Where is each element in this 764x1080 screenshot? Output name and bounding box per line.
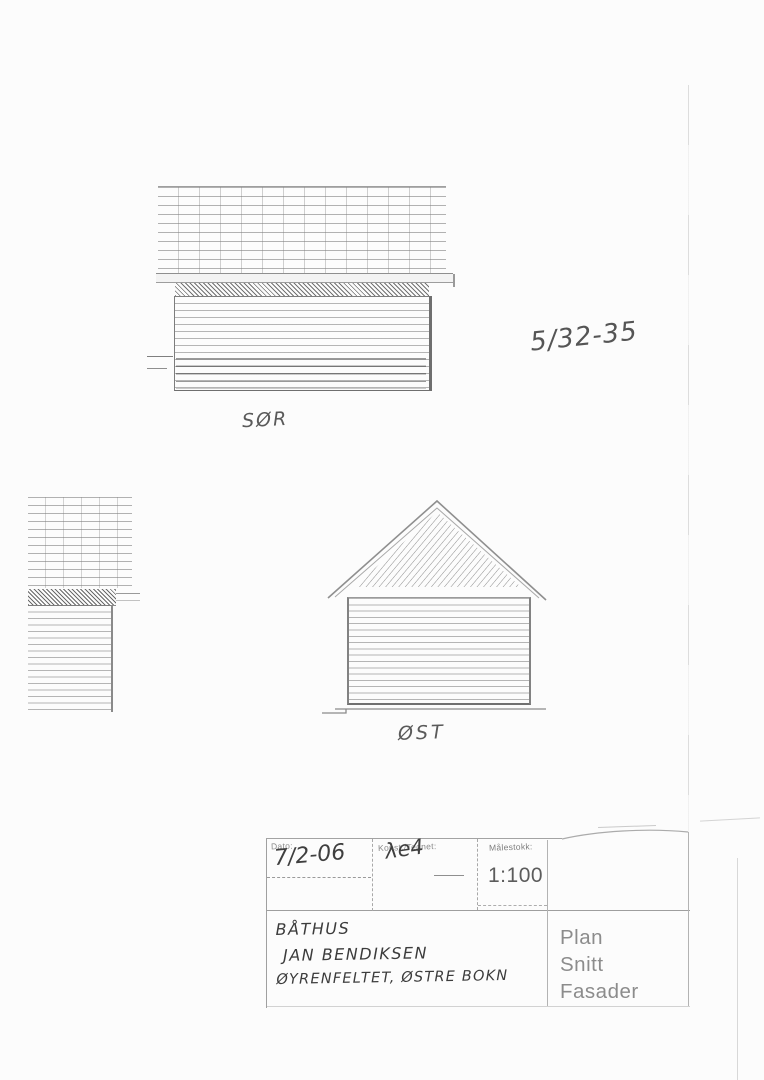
project-owner: JAN BENDIKSEN	[283, 938, 508, 967]
drawing-content-list: Plan Snitt Fasader	[560, 924, 639, 1005]
content-item-fasader: Fasader	[560, 978, 639, 1005]
west-wall-siding	[28, 605, 113, 712]
title-block-divider-scale-content	[547, 840, 548, 1006]
west-roof-shingle-grid	[28, 497, 132, 588]
south-wall-base-lines	[176, 358, 426, 389]
east-elevation-label: ØST	[398, 721, 446, 745]
drawn-by-signature: λe4	[384, 834, 426, 863]
scan-fold-line-lower	[737, 858, 738, 1080]
title-block-bottom-border	[266, 1006, 690, 1007]
south-eave-fascia	[156, 273, 453, 283]
title-block-top-border-wavy	[562, 827, 689, 841]
south-wall-top-hatch-band	[175, 283, 429, 297]
project-info-handwritten: BÅTHUS JAN BENDIKSEN ØYRENFELTET, ØSTRE …	[275, 913, 508, 994]
scanned-drawing-page: SØR 5/32-35 ØST	[0, 0, 764, 1080]
scale-cell-underline	[478, 905, 547, 906]
scan-fold-line	[688, 85, 689, 833]
west-wall-top-hatch-band	[28, 589, 116, 606]
title-block: Dato: Konst./Tegnet: Målestokk: 7/2-06 λ…	[266, 825, 690, 1011]
date-cell-underline	[267, 877, 371, 878]
title-block-right-border	[688, 832, 689, 1006]
date-value-handwritten: 7/2-06	[273, 840, 346, 871]
title-block-divider-drawn-scale	[477, 839, 478, 910]
east-wall-siding	[347, 597, 531, 705]
scale-value: 1:100	[488, 864, 543, 888]
content-item-snitt: Snitt	[560, 951, 639, 978]
east-gable-hatch	[354, 512, 521, 587]
sheet-number-annotation: 5/32-35	[529, 316, 639, 357]
south-dimension-ticks	[147, 352, 173, 374]
east-ground-line	[322, 709, 546, 713]
title-block-divider-date-drawn	[372, 839, 373, 911]
title-block-left-border	[266, 838, 267, 1008]
project-location: ØYRENFELTET, ØSTRE BOKN	[276, 964, 508, 994]
scan-stray-mark	[700, 817, 760, 821]
title-block-row-divider	[266, 910, 690, 911]
south-roof-shingle-grid	[158, 186, 446, 274]
south-elevation-label: SØR	[241, 408, 288, 432]
content-item-plan: Plan	[560, 924, 639, 951]
signature-underline	[434, 875, 464, 876]
scale-field-label: Målestokk:	[489, 841, 533, 853]
